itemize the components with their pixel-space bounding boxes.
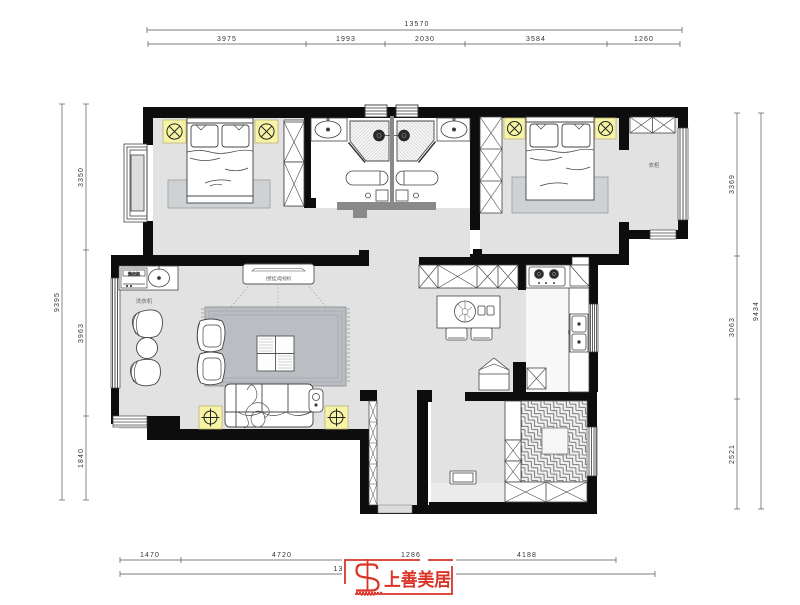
svg-text:3975: 3975 <box>217 36 237 43</box>
svg-text:1470: 1470 <box>140 552 160 559</box>
svg-text:1993: 1993 <box>336 36 356 43</box>
svg-text:13570: 13570 <box>405 21 430 28</box>
svg-text:3963: 3963 <box>78 323 85 343</box>
svg-text:1840: 1840 <box>78 448 85 468</box>
svg-text:1260: 1260 <box>634 36 654 43</box>
svg-text:2030: 2030 <box>415 36 435 43</box>
svg-text:洗衣机: 洗衣机 <box>136 297 153 305</box>
svg-text:(壁挂)电视机: (壁挂)电视机 <box>266 275 292 282</box>
svg-text:洗衣机: 洗衣机 <box>128 271 140 277</box>
svg-text:4188: 4188 <box>517 552 537 559</box>
svg-text:3350: 3350 <box>78 167 85 187</box>
svg-text:3063: 3063 <box>729 317 736 337</box>
svg-text:4720: 4720 <box>272 552 292 559</box>
svg-text:上善美居: 上善美居 <box>384 569 451 590</box>
svg-text:2521: 2521 <box>729 444 736 464</box>
svg-text:衣柜: 衣柜 <box>648 161 660 169</box>
svg-text:3584: 3584 <box>526 36 546 43</box>
svg-text:9395: 9395 <box>54 292 61 312</box>
svg-text:3369: 3369 <box>729 174 736 194</box>
svg-text:9434: 9434 <box>753 301 760 321</box>
